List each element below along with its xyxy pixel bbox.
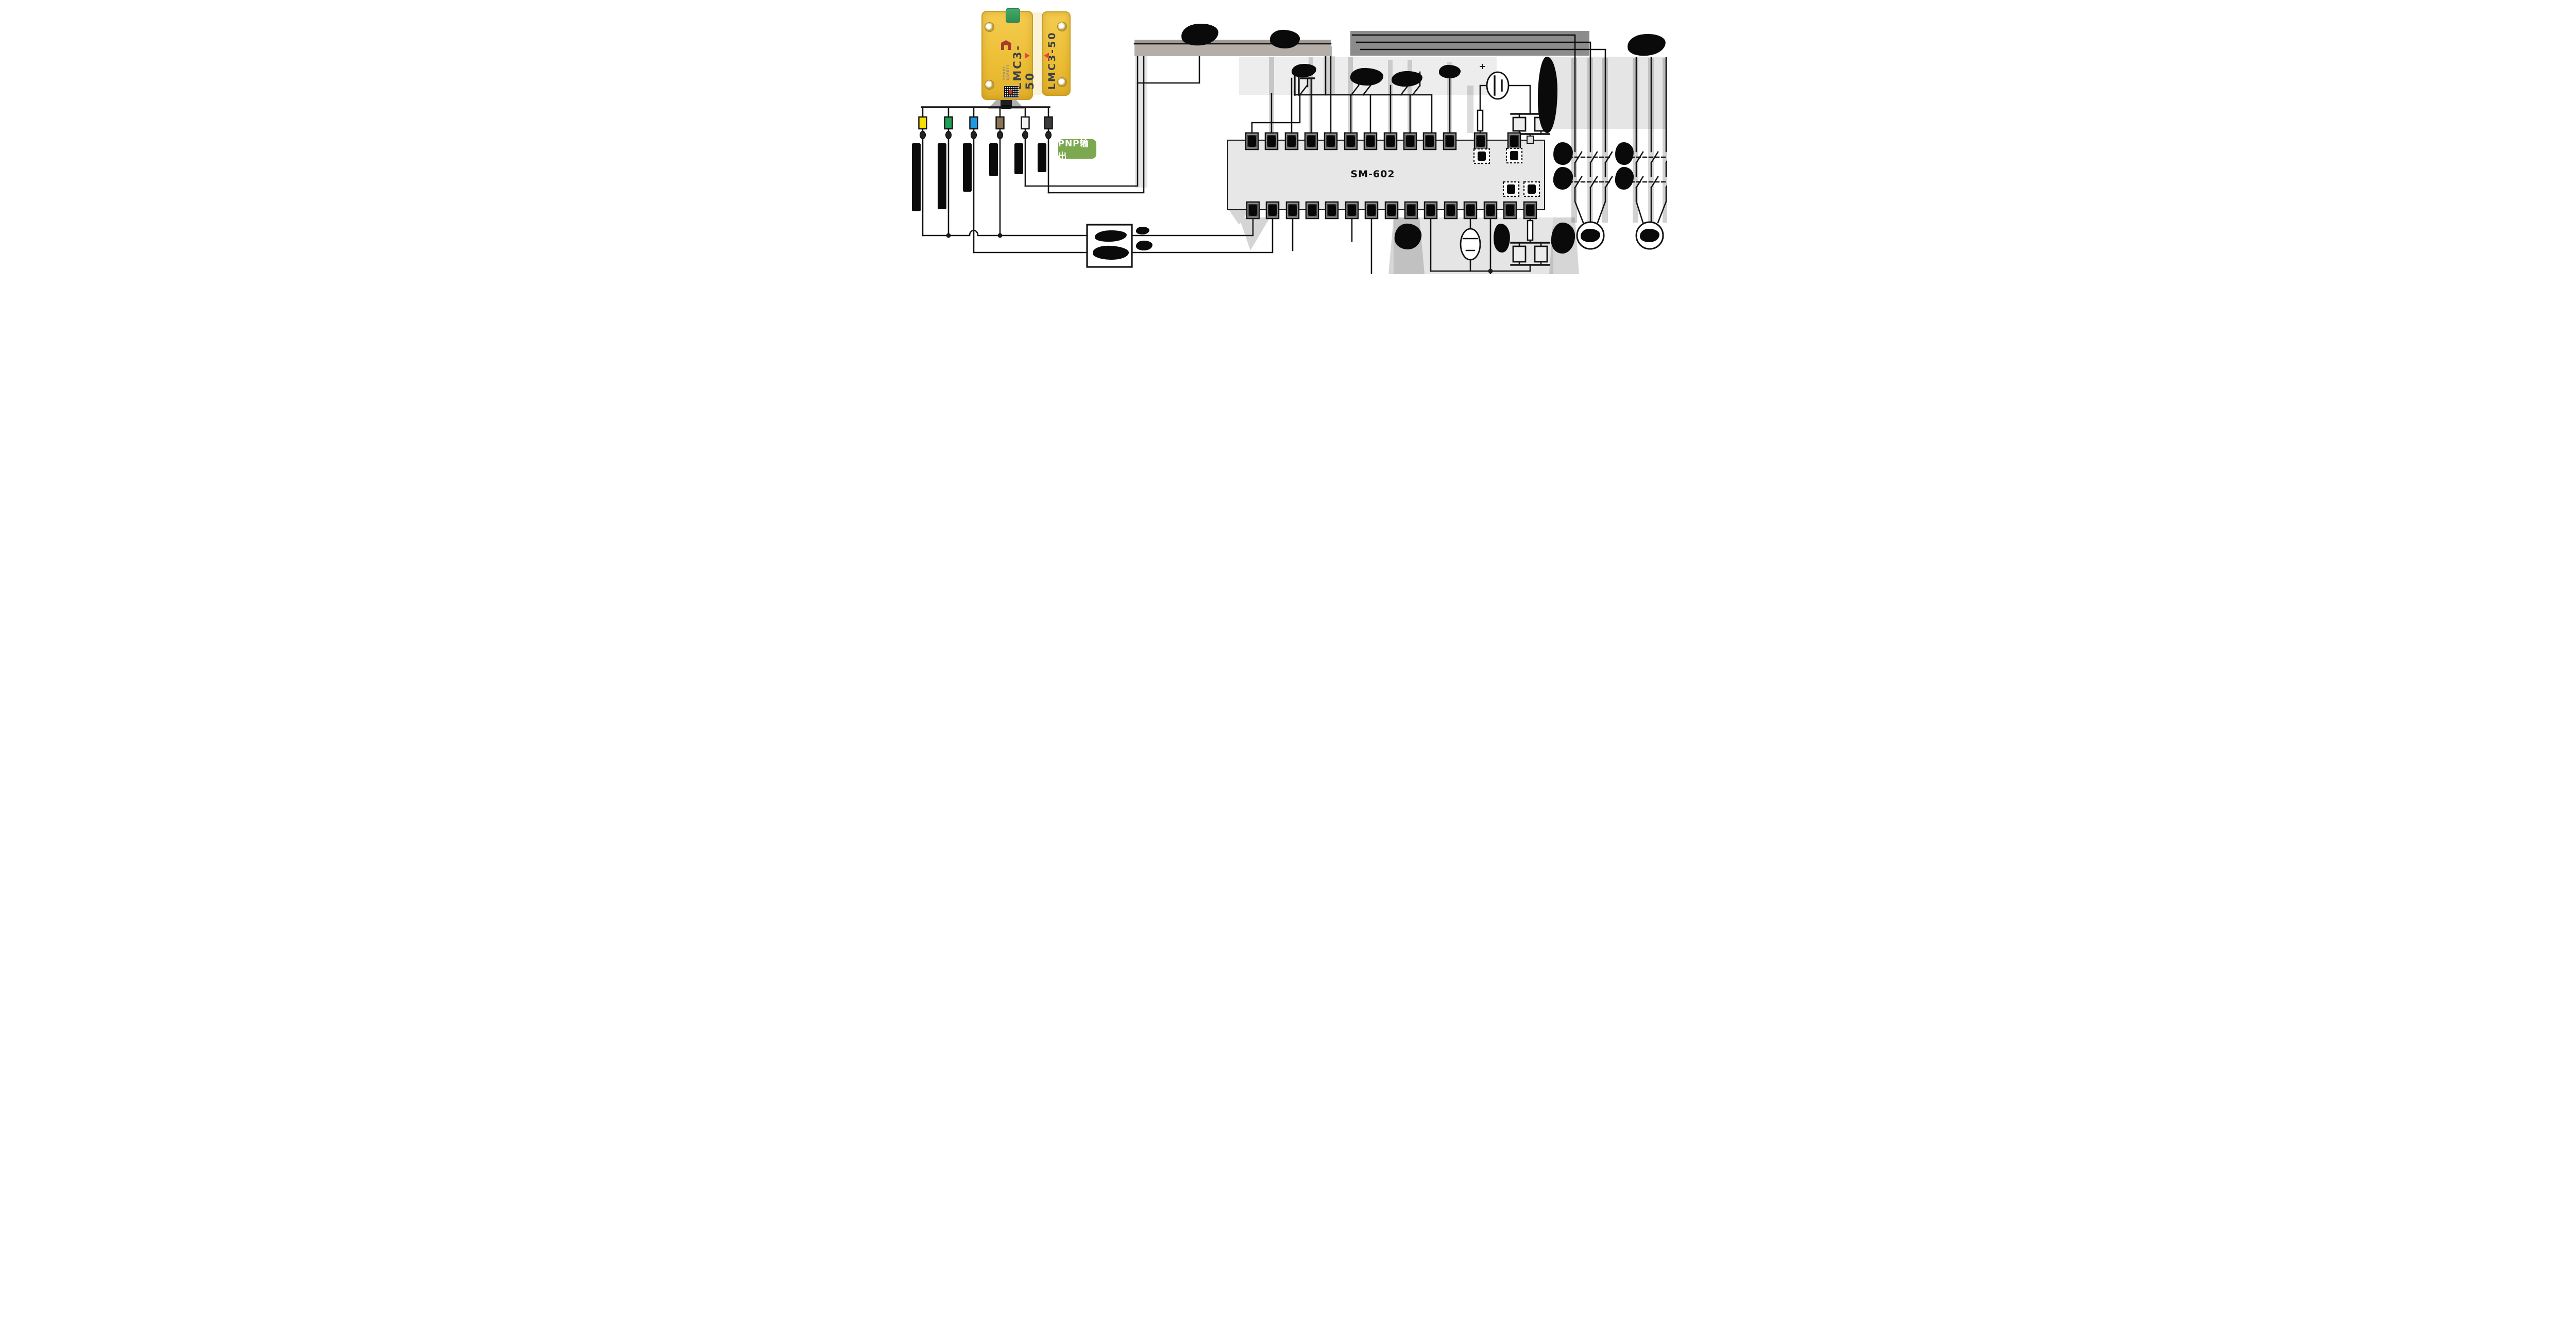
- illegible-text-blob: [1438, 64, 1461, 79]
- illegible-text-blob: [1269, 29, 1300, 49]
- illegible-text-blob: [1550, 222, 1575, 254]
- illegible-text-blob: [1538, 57, 1557, 133]
- illegible-text-blob: [1394, 223, 1422, 250]
- illegible-text-blob: [1552, 142, 1573, 165]
- illegible-text-blob: [1552, 166, 1573, 190]
- illegible-text-blob: [1136, 227, 1149, 234]
- illegible-text-blob: [1094, 230, 1127, 242]
- illegible-text-blob: [1391, 71, 1422, 87]
- illegible-text-blob: [1614, 166, 1634, 190]
- illegible-text-blob: [1581, 229, 1600, 242]
- illegible-text-blob: [1092, 245, 1129, 260]
- illegible-label-layer: [909, 8, 1667, 274]
- illegible-text-blob: [1493, 223, 1511, 253]
- illegible-text-blob: [1640, 229, 1659, 242]
- wiring-diagram-canvas: LMC3-50 SMART SAFETY LMC3-50 PNP输出 SM-60…: [909, 8, 1667, 274]
- illegible-text-blob: [1614, 142, 1634, 165]
- illegible-text-blob: [1180, 23, 1219, 47]
- illegible-text-blob: [1626, 32, 1666, 57]
- illegible-text-blob: [1350, 68, 1383, 86]
- illegible-text-blob: [1291, 63, 1316, 78]
- illegible-text-blob: [1136, 241, 1153, 250]
